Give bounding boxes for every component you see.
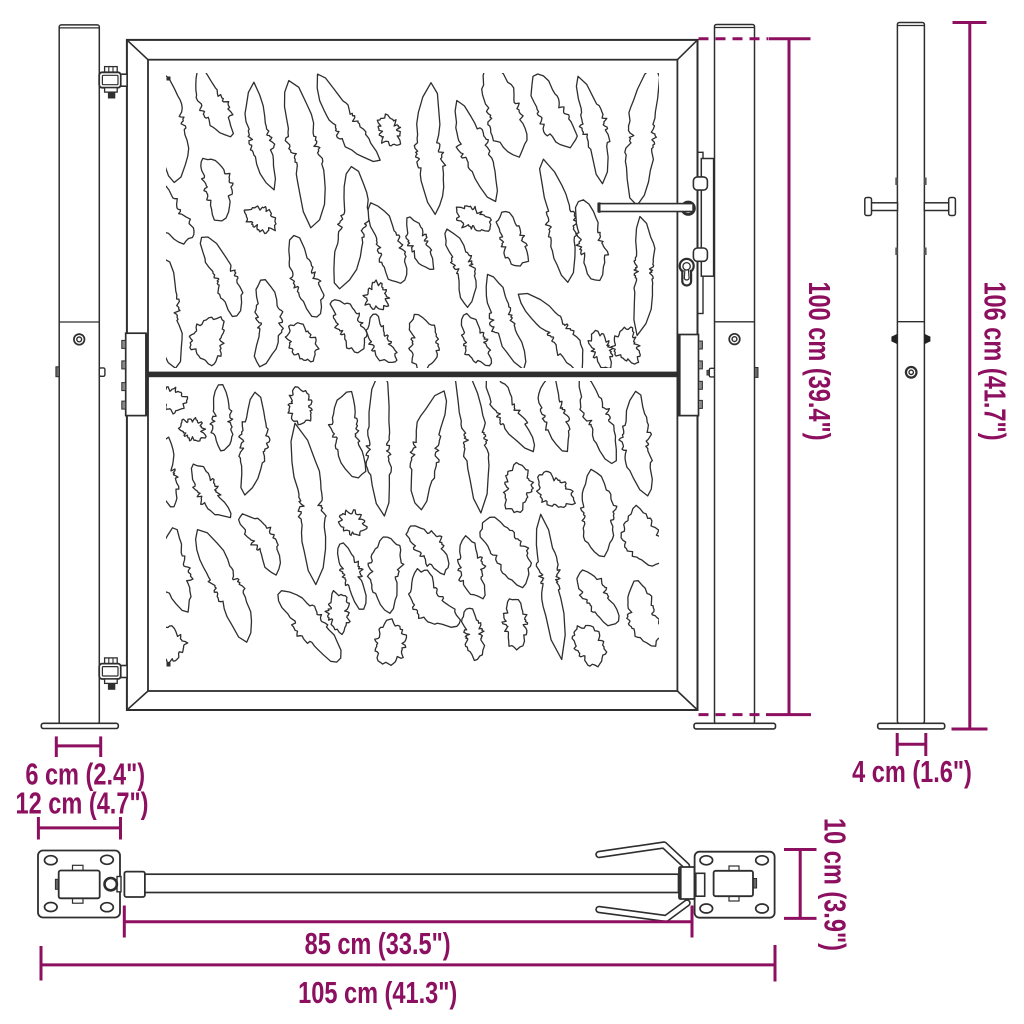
svg-text:105 cm (41.3"): 105 cm (41.3"): [298, 975, 457, 1010]
svg-text:106 cm (41.7"): 106 cm (41.7"): [978, 281, 1013, 440]
svg-text:100 cm (39.4"): 100 cm (39.4"): [802, 281, 837, 440]
svg-text:10 cm (3.9"): 10 cm (3.9"): [818, 818, 853, 951]
svg-text:4 cm (1.6"): 4 cm (1.6"): [852, 754, 972, 789]
svg-text:85 cm (33.5"): 85 cm (33.5"): [305, 926, 451, 961]
svg-text:12 cm (4.7"): 12 cm (4.7"): [16, 786, 149, 821]
